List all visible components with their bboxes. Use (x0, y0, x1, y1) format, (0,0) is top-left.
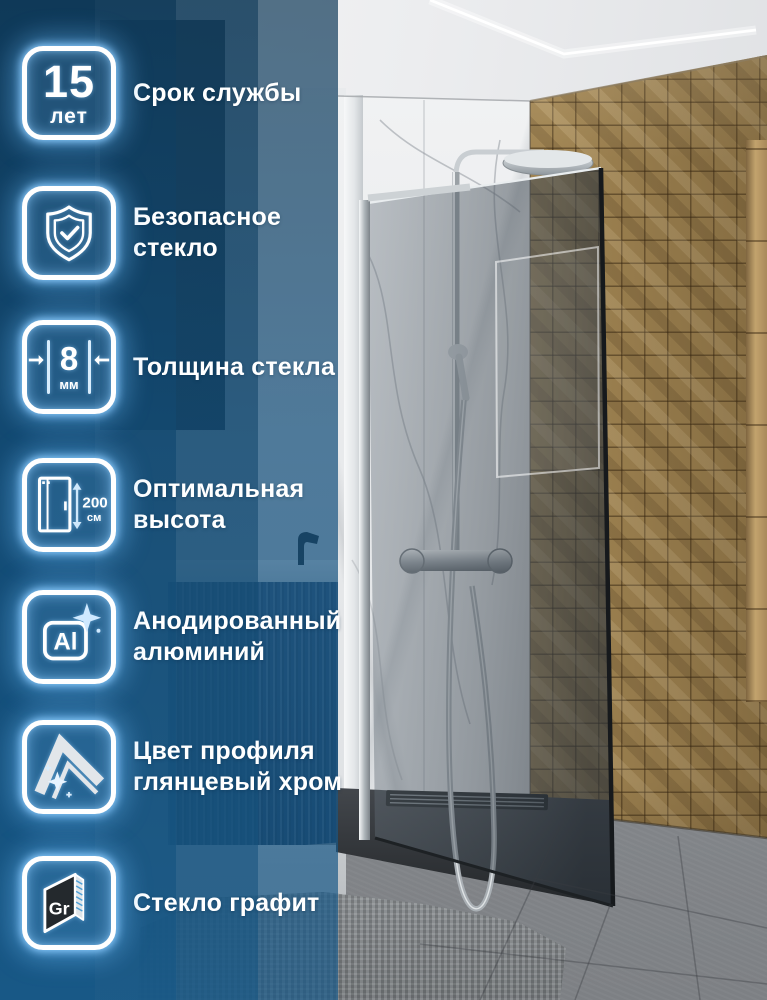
feature-graphite-glass: Gr Стекло графит (22, 856, 345, 950)
feature-label: Стекло графит (133, 888, 345, 919)
feature-list: 15 лет Срок службы Безопасное стекло ➞ (0, 0, 767, 1000)
feature-optimal-height: 200 см Оптимальная высота (22, 458, 345, 552)
lifespan-value: 15 (43, 59, 95, 104)
shield-check-icon (22, 186, 116, 280)
thickness-value: 8 (60, 342, 78, 375)
arrow-left-icon: ➞ (94, 349, 110, 372)
height-value: 200 (82, 495, 107, 512)
glass-thickness-icon: ➞ 8 мм ➞ (22, 320, 116, 414)
chrome-profile-icon (22, 720, 116, 814)
aluminum-symbol: Al (53, 629, 77, 656)
feature-safety-glass: Безопасное стекло (22, 186, 345, 280)
feature-chrome-profile: Цвет профиля глянцевый хром (22, 720, 345, 814)
feature-lifespan: 15 лет Срок службы (22, 46, 345, 140)
thickness-unit: мм (59, 377, 78, 392)
lifespan-badge-icon: 15 лет (22, 46, 116, 140)
lifespan-unit: лет (50, 106, 88, 127)
feature-label: Срок службы (133, 78, 345, 109)
feature-label: Анодированный алюминий (133, 606, 345, 668)
arrow-right-icon: ➞ (28, 349, 44, 372)
feature-label: Безопасное стекло (133, 202, 345, 264)
graphite-glass-icon: Gr (22, 856, 116, 950)
feature-glass-thickness: ➞ 8 мм ➞ Толщина стекла (22, 320, 345, 414)
graphite-symbol: Gr (49, 899, 70, 919)
feature-label: Цвет профиля глянцевый хром (133, 736, 345, 798)
feature-label: Оптимальная высота (133, 474, 345, 536)
promo-banner: 15 лет Срок службы Безопасное стекло ➞ (0, 0, 767, 1000)
anodized-aluminum-icon: Al (22, 590, 116, 684)
feature-label: Толщина стекла (133, 352, 345, 383)
height-unit: см (87, 512, 101, 524)
door-height-icon: 200 см (22, 458, 116, 552)
feature-anodized-aluminum: Al Анодированный алюминий (22, 590, 345, 684)
